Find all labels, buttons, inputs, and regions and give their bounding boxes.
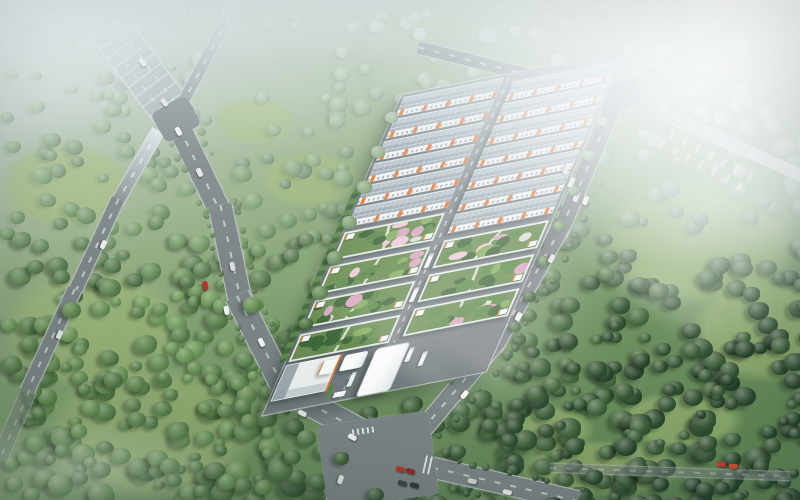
roof-stair-bulkhead: [512, 274, 523, 281]
tree: [154, 401, 172, 416]
roof-stair-bulkhead: [497, 308, 508, 315]
tree: [144, 416, 159, 429]
tree: [48, 474, 73, 495]
tree: [7, 70, 18, 79]
tree: [218, 341, 234, 355]
tree: [188, 296, 201, 307]
tree: [696, 482, 715, 498]
street-tree: [516, 332, 523, 339]
tree: [262, 427, 275, 438]
tree: [568, 186, 580, 196]
tree: [32, 167, 52, 184]
tree: [29, 32, 37, 39]
tree: [421, 78, 434, 89]
tree: [251, 244, 267, 257]
tree: [354, 100, 371, 115]
tree: [198, 402, 212, 414]
tree: [128, 412, 146, 427]
tree: [683, 343, 701, 359]
tree: [491, 401, 502, 411]
tree: [683, 389, 703, 406]
tree: [284, 160, 303, 176]
tree: [631, 277, 648, 291]
tree: [45, 150, 57, 160]
tree: [342, 216, 357, 229]
tree: [189, 6, 200, 15]
tree: [779, 417, 789, 425]
tree: [694, 106, 708, 118]
tree: [100, 350, 119, 366]
street-tree: [240, 227, 247, 234]
tree: [280, 213, 298, 228]
tree: [195, 485, 208, 496]
tree: [118, 132, 131, 143]
tree: [610, 297, 630, 314]
tree: [125, 398, 141, 412]
tree: [743, 211, 760, 225]
car: [717, 462, 726, 467]
tree: [131, 361, 142, 370]
street-tree: [269, 321, 275, 327]
tree: [164, 389, 178, 401]
tree: [184, 374, 194, 382]
street-tree: [263, 310, 268, 315]
tree: [215, 445, 227, 456]
tree: [236, 352, 254, 367]
tree: [784, 353, 800, 372]
street-tree: [294, 415, 300, 421]
tree: [413, 28, 427, 40]
tree: [168, 422, 189, 440]
street-tree: [204, 208, 210, 214]
tree: [509, 25, 521, 36]
tree: [369, 20, 385, 33]
roof-stair-bulkhead: [429, 275, 440, 282]
tree: [778, 139, 796, 154]
tree: [172, 291, 184, 301]
tree: [104, 258, 121, 273]
tree: [698, 270, 718, 287]
tree: [385, 112, 398, 123]
roof-stair-bulkhead: [408, 267, 419, 274]
street-tree: [450, 486, 457, 493]
tree: [685, 15, 694, 22]
tree: [764, 438, 781, 453]
tree: [1, 318, 17, 331]
tree: [127, 376, 145, 391]
tree: [299, 318, 313, 330]
tree: [64, 36, 76, 46]
tree: [141, 263, 161, 280]
street-tree: [210, 233, 215, 238]
tree: [712, 385, 725, 396]
tree: [784, 373, 800, 390]
tree: [150, 216, 164, 228]
tree: [7, 477, 23, 491]
tree: [166, 474, 182, 487]
tree: [620, 249, 637, 264]
street-tree: [542, 288, 548, 294]
tree: [28, 260, 44, 274]
street-tree: [590, 191, 595, 196]
truck: [417, 351, 428, 367]
tree: [559, 19, 572, 30]
tree: [62, 302, 81, 318]
tree: [559, 333, 578, 349]
street-tree: [469, 397, 476, 404]
roof-stair-bulkhead: [300, 335, 311, 342]
tree: [347, 22, 360, 33]
tree: [649, 283, 669, 300]
street-tree: [606, 156, 614, 164]
tree: [658, 102, 671, 113]
tree: [33, 239, 49, 253]
tree: [696, 410, 706, 418]
street-tree: [174, 154, 182, 162]
tree: [46, 455, 57, 464]
tree: [248, 371, 258, 380]
tree: [158, 157, 171, 168]
tree: [112, 298, 121, 306]
tree: [721, 374, 735, 386]
roof-stair-bulkhead: [393, 301, 404, 308]
tree: [334, 67, 350, 81]
tree: [610, 321, 621, 331]
tree: [544, 13, 554, 22]
tree: [24, 488, 40, 500]
street-tree: [588, 135, 593, 140]
tree: [104, 372, 122, 388]
tree: [334, 452, 349, 465]
tree: [243, 297, 262, 313]
tree: [538, 424, 555, 438]
street-tree: [581, 487, 586, 492]
street-tree: [463, 490, 470, 497]
roof-stair-bulkhead: [378, 335, 389, 342]
tree: [714, 111, 732, 126]
tree: [367, 488, 384, 500]
tree: [26, 435, 46, 452]
street-tree: [436, 433, 442, 439]
tree: [78, 384, 91, 395]
tree: [280, 179, 291, 188]
tree: [329, 114, 346, 128]
tree: [241, 414, 258, 429]
street-tree: [627, 109, 633, 115]
tree: [303, 208, 318, 220]
tree: [658, 396, 677, 412]
tree: [67, 85, 77, 94]
tree: [789, 469, 799, 478]
tree: [98, 71, 114, 85]
tree: [544, 377, 562, 392]
tree: [162, 6, 170, 13]
tree: [764, 119, 781, 133]
tree: [340, 146, 354, 158]
tree: [743, 287, 760, 302]
tree: [698, 436, 716, 452]
street-tree: [549, 277, 557, 285]
tree: [12, 232, 31, 248]
tree: [773, 273, 787, 285]
tree: [72, 472, 88, 485]
tree: [698, 369, 713, 382]
tree: [479, 30, 494, 43]
tree: [3, 356, 23, 373]
tree: [98, 441, 112, 453]
tree: [637, 149, 652, 162]
tree: [291, 21, 299, 28]
tree: [1, 112, 14, 123]
tree: [231, 378, 245, 390]
tree: [509, 322, 521, 332]
street-tree: [507, 469, 514, 476]
roof-stair-bulkhead: [344, 233, 355, 240]
tree: [21, 337, 38, 351]
tree: [565, 438, 585, 455]
tree: [553, 221, 566, 232]
tree: [119, 145, 135, 158]
street-tree: [257, 368, 262, 373]
tree: [510, 398, 526, 411]
street-tree: [457, 459, 462, 464]
tree: [193, 262, 211, 277]
tree: [541, 1, 551, 9]
tree: [150, 178, 167, 192]
tree: [771, 338, 790, 354]
tree: [572, 398, 587, 411]
tree: [482, 419, 499, 433]
tree: [71, 424, 87, 438]
tree: [235, 399, 252, 413]
tree: [258, 223, 276, 239]
tree: [740, 120, 755, 133]
tree: [618, 262, 632, 274]
street-tree: [561, 255, 569, 263]
tree: [165, 342, 179, 354]
tree: [299, 233, 315, 246]
tree: [551, 312, 573, 331]
tree: [526, 347, 539, 358]
tree: [29, 100, 45, 114]
car: [729, 464, 738, 469]
tree: [88, 483, 114, 500]
street-tree: [210, 246, 215, 251]
tree: [76, 207, 96, 224]
street-tree: [244, 239, 249, 244]
tree: [670, 207, 684, 219]
tree: [43, 133, 60, 148]
tree: [327, 251, 343, 265]
tree: [306, 154, 321, 167]
tree: [92, 301, 110, 316]
tree: [599, 267, 615, 281]
tree: [616, 438, 637, 456]
tree: [371, 146, 385, 158]
tree: [42, 3, 51, 10]
roof-stair-bulkhead: [444, 241, 455, 248]
scene: [0, 0, 800, 500]
tree: [334, 82, 346, 92]
tree: [189, 461, 203, 473]
tree: [262, 153, 275, 164]
tree: [31, 72, 41, 81]
tree: [357, 181, 372, 194]
tree: [74, 344, 87, 355]
tree: [725, 398, 739, 410]
tree: [180, 275, 196, 288]
tree: [692, 212, 709, 226]
tree: [297, 430, 316, 446]
roof-stair-bulkhead: [422, 233, 433, 240]
tree: [189, 235, 210, 253]
street-tree: [235, 325, 241, 331]
tree: [135, 335, 158, 354]
tree: [131, 306, 145, 318]
tree: [766, 2, 780, 14]
tree: [734, 84, 746, 94]
tree: [112, 448, 131, 464]
street-tree: [236, 202, 242, 208]
street-tree: [504, 354, 511, 361]
tree: [786, 182, 800, 197]
tree: [171, 327, 190, 343]
tree: [99, 279, 121, 297]
tree: [789, 428, 800, 439]
tree: [753, 342, 767, 354]
street-tree: [615, 132, 623, 140]
tree: [176, 348, 194, 363]
tree: [523, 291, 536, 302]
roof-stair-bulkhead: [329, 267, 340, 274]
tree: [728, 98, 745, 112]
tree: [450, 445, 466, 459]
tree: [656, 439, 665, 447]
tree: [663, 384, 678, 397]
tree: [759, 260, 777, 275]
tree: [360, 64, 372, 75]
tree: [330, 97, 348, 112]
tree: [501, 433, 518, 447]
tree: [319, 167, 335, 180]
street-tree: [475, 492, 481, 498]
tree: [787, 400, 797, 409]
tree: [39, 193, 56, 208]
tree: [610, 493, 621, 500]
tree: [160, 458, 180, 475]
roof-stair-bulkhead: [315, 301, 326, 308]
tree: [205, 374, 219, 386]
tree: [104, 90, 114, 99]
tree: [154, 481, 165, 490]
tree: [587, 361, 606, 377]
tree: [733, 492, 745, 500]
tree: [528, 358, 551, 377]
street-tree: [236, 210, 241, 215]
tree: [409, 12, 422, 23]
tree: [370, 87, 384, 99]
street-tree: [567, 243, 572, 248]
tree: [582, 275, 600, 290]
tree: [497, 3, 505, 10]
tree: [233, 166, 252, 182]
tree: [53, 270, 70, 285]
tree: [733, 31, 747, 43]
tree: [50, 164, 66, 178]
tree: [794, 279, 800, 291]
roof-stair-bulkhead: [414, 309, 425, 316]
tree: [10, 211, 26, 224]
tree: [95, 120, 111, 134]
tree: [555, 421, 566, 430]
street-tree: [572, 232, 579, 239]
tree: [620, 210, 640, 227]
tree: [126, 273, 143, 288]
tree: [660, 180, 680, 197]
tree: [528, 27, 541, 38]
tree: [71, 156, 84, 167]
tree: [702, 57, 714, 67]
tree: [244, 193, 263, 209]
tree: [201, 116, 212, 125]
tree: [82, 400, 100, 416]
tree: [256, 92, 270, 104]
street-tree: [492, 369, 500, 377]
tree: [169, 233, 187, 249]
tree: [217, 404, 234, 418]
tree: [748, 302, 769, 320]
tree: [791, 21, 800, 35]
tree: [732, 260, 753, 278]
tree: [561, 297, 580, 313]
roof-stair-bulkhead: [527, 240, 538, 247]
tree: [730, 1, 743, 12]
tree: [334, 170, 353, 186]
tree: [672, 156, 683, 165]
street-tree: [595, 180, 603, 188]
tree: [652, 360, 668, 374]
tree: [312, 286, 328, 300]
tree: [284, 249, 300, 263]
